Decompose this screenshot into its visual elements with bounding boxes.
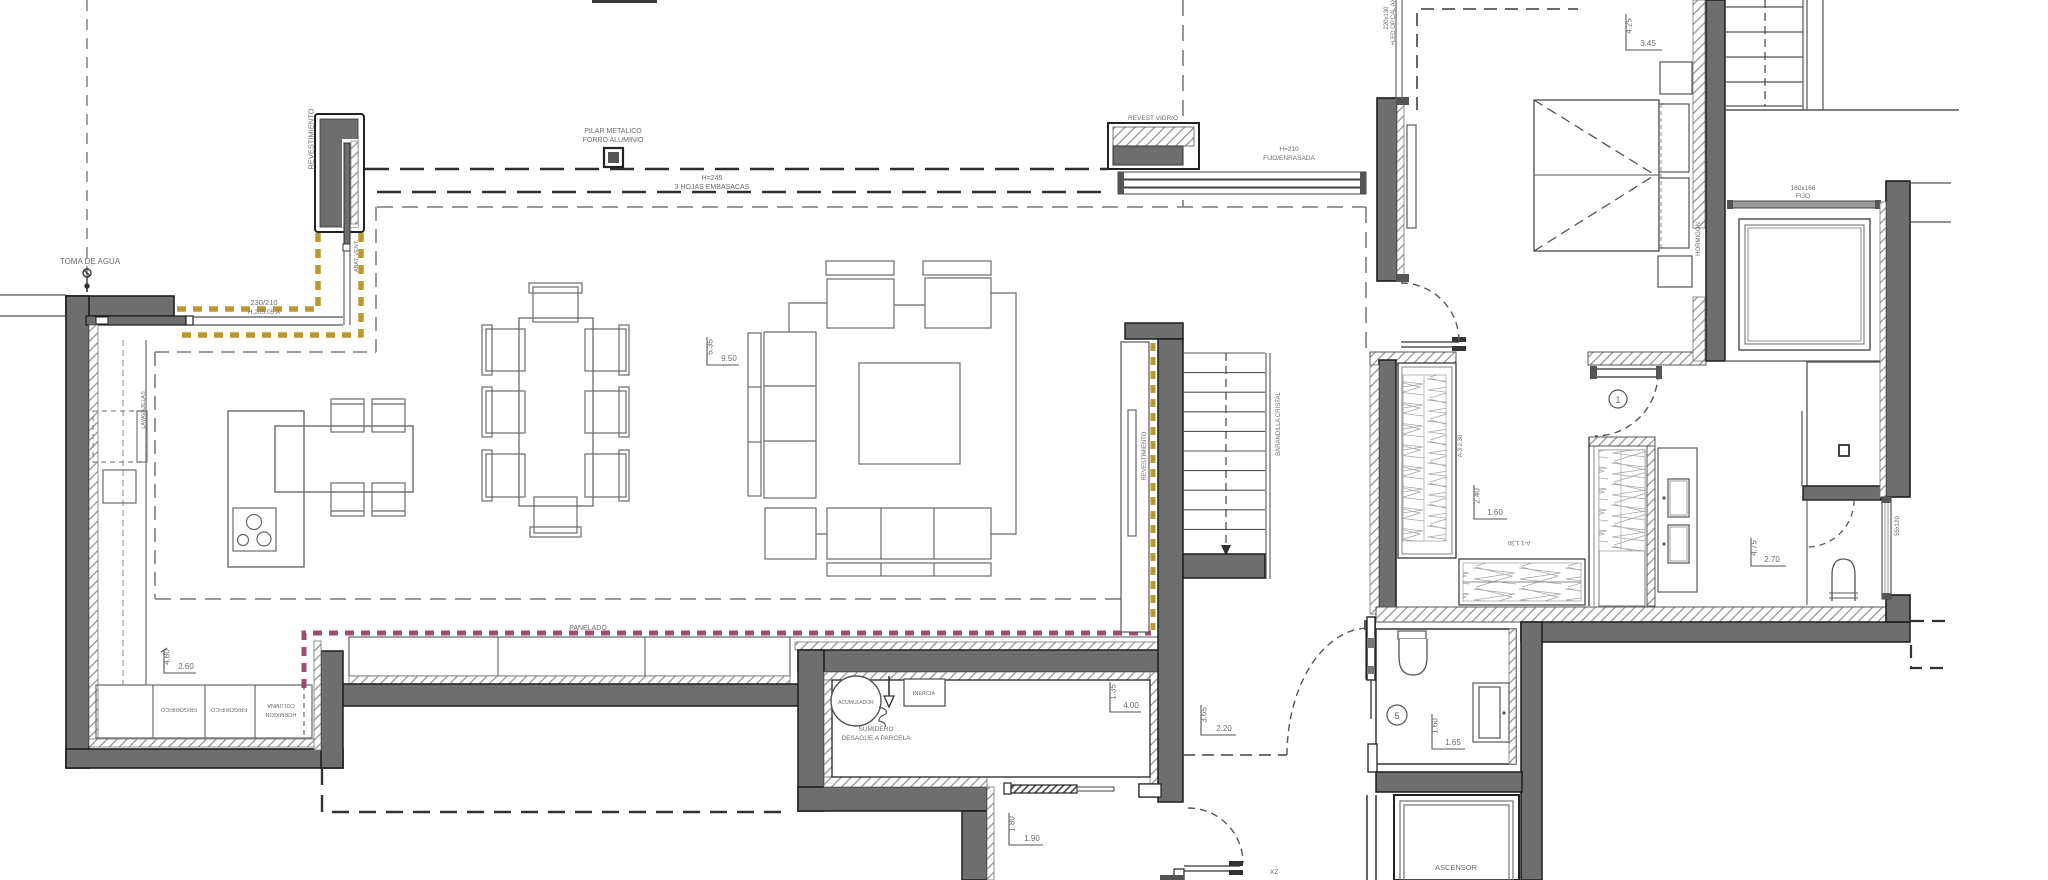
svg-text:+LED OP.CAL AXXS: +LED OP.CAL AXXS	[1391, 0, 1397, 46]
svg-text:3.45: 3.45	[1640, 39, 1656, 48]
svg-text:REVEST VIDRIO: REVEST VIDRIO	[1128, 115, 1178, 122]
svg-text:H.205.05 A: H.205.05 A	[248, 309, 281, 316]
svg-text:3.65: 3.65	[1200, 707, 1209, 723]
svg-text:FRIGORIFICO: FRIGORIFICO	[160, 706, 197, 712]
svg-text:FORRO ALUMINIO: FORRO ALUMINIO	[583, 137, 644, 144]
svg-text:INERCIA: INERCIA	[913, 691, 936, 697]
svg-text:4.75: 4.75	[1750, 540, 1759, 556]
svg-text:FIJO: FIJO	[1796, 193, 1810, 200]
svg-text:1.90: 1.90	[1024, 834, 1040, 843]
svg-text:5.35: 5.35	[706, 339, 715, 355]
svg-text:ACUMULADOR: ACUMULADOR	[838, 700, 874, 706]
svg-text:9.50: 9.50	[721, 354, 737, 363]
svg-text:1.60: 1.60	[1431, 718, 1440, 734]
svg-text:1: 1	[1615, 395, 1620, 405]
svg-text:H=245: H=245	[702, 175, 723, 182]
svg-text:1.60: 1.60	[1487, 508, 1503, 517]
svg-text:PILAR METALICO: PILAR METALICO	[584, 128, 642, 135]
svg-text:55x120: 55x120	[1895, 515, 1901, 535]
svg-text:2.70: 2.70	[1764, 555, 1780, 564]
svg-text:REVESTIMIENTO: REVESTIMIENTO	[1142, 431, 1148, 480]
svg-text:230/210: 230/210	[250, 298, 277, 307]
svg-text:REVESTIMIENTO: REVESTIMIENTO	[307, 108, 316, 169]
svg-text:160x166: 160x166	[1791, 185, 1816, 192]
svg-text:COLUMNA: COLUMNA	[267, 702, 295, 708]
svg-text:1.65: 1.65	[1445, 738, 1461, 747]
svg-text:1.80: 1.80	[1008, 816, 1017, 832]
svg-text:FRIGORIFICO: FRIGORIFICO	[210, 706, 247, 712]
svg-text:TOMA DE AGUA: TOMA DE AGUA	[60, 257, 121, 266]
svg-text:XZ: XZ	[1270, 869, 1278, 876]
svg-text:HORMIGON: HORMIGON	[266, 711, 297, 717]
svg-text:FIJO/ENRASADA: FIJO/ENRASADA	[1263, 155, 1315, 162]
svg-text:4.80: 4.80	[163, 649, 172, 665]
svg-text:4.25: 4.25	[1625, 18, 1634, 34]
svg-text:A-1 1.30: A-1 1.30	[1507, 539, 1530, 545]
svg-text:BARANDILLA CRISTAL: BARANDILLA CRISTAL	[1276, 392, 1282, 456]
svg-text:2.40: 2.40	[1473, 488, 1482, 504]
svg-text:1.35: 1.35	[1109, 684, 1118, 700]
svg-text:ASCENSOR: ASCENSOR	[1435, 863, 1478, 872]
svg-text:LAVAVAJILLAS: LAVAVAJILLAS	[141, 391, 147, 429]
svg-text:A-3 2.30: A-3 2.30	[1458, 434, 1464, 457]
svg-text:220x130: 220x130	[1384, 6, 1390, 30]
svg-text:2.60: 2.60	[178, 662, 194, 671]
svg-text:4.00: 4.00	[1123, 701, 1139, 710]
svg-text:ABAT. VENT.: ABAT. VENT.	[354, 240, 360, 272]
svg-text:DESAGUE A PARCELA: DESAGUE A PARCELA	[842, 735, 912, 742]
svg-text:5: 5	[1394, 711, 1399, 721]
svg-text:3 HOJAS EMBASACAS: 3 HOJAS EMBASACAS	[675, 184, 750, 191]
svg-text:H=210: H=210	[1279, 146, 1299, 153]
svg-text:2.20: 2.20	[1216, 724, 1232, 733]
svg-text:HORMIGON: HORMIGON	[1696, 222, 1702, 256]
svg-text:SUMIDERO: SUMIDERO	[858, 726, 893, 733]
